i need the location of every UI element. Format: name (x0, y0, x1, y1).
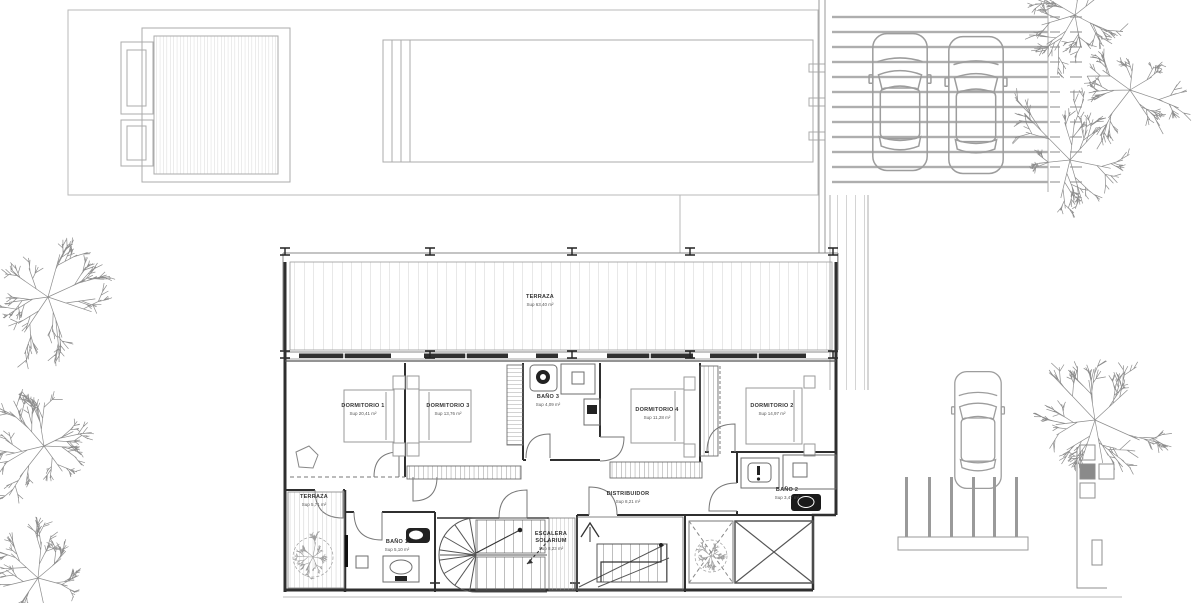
door-hall-1 (499, 490, 527, 518)
corner-chair (296, 446, 318, 468)
room-label-dormitorio-3: DORMITORIO 3 Sup 13,76 m² (426, 403, 469, 417)
room-label-dormitorio-1: DORMITORIO 1 Sup 20,41 m² (341, 403, 384, 417)
room-label-bano-3: BAÑO 3 Sup 4,09 m² (536, 394, 561, 408)
floor-plan-page: TERRAZA Sup 63,40 m² DORMITORIO 1 Sup 20… (0, 0, 1200, 603)
boundary-wall (819, 0, 825, 253)
pergola-carport (830, 8, 1082, 390)
room-label-escalera-solarium: ESCALERA SOLARIUM Sup 8,23 m² (531, 531, 571, 551)
facade-windows (299, 354, 806, 359)
wardrobe-d2 (700, 366, 718, 456)
room-label-dormitorio-2: DORMITORIO 2 Sup 14,97 m² (750, 403, 793, 417)
room-label-dormitorio-4: DORMITORIO 4 Sup 11,28 m² (635, 407, 678, 421)
terrace-hatch (290, 262, 832, 350)
shower-bano-2 (783, 455, 836, 489)
stair-shaft-hatch (549, 518, 575, 590)
main-stair (577, 517, 683, 590)
room-label-bano-2: BAÑO 2 Sup 3,47 m² (775, 487, 800, 501)
solarium-deck (121, 28, 290, 182)
floor-plan-drawing (0, 0, 1200, 603)
garden-structures (1077, 445, 1114, 588)
spiral-stair-solarium (439, 518, 575, 592)
shower-bano-3 (561, 364, 595, 394)
car-top-view-3 (952, 372, 1005, 489)
door-dormitorio-3 (413, 477, 437, 501)
room-label-bano-1: BAÑO 1 Sup 5,10 m² (385, 539, 410, 553)
pergola-slats (832, 12, 1048, 190)
door-bano-2 (709, 483, 737, 511)
room-label-distribuidor: DISTRIBUIDOR Sup 8,21 m² (607, 491, 650, 505)
wardrobe-d3 (407, 466, 521, 479)
swimming-pool (383, 40, 825, 162)
upper-terrace (283, 253, 838, 359)
door-dormitorio-4 (600, 437, 624, 461)
wardrobe-d4 (610, 462, 702, 478)
room-label-terraza-lower: TERRAZA Sup 5,71 m² (300, 494, 328, 508)
door-bano-3 (526, 434, 550, 458)
closet-d3 (507, 365, 523, 445)
stair-skylight (689, 521, 813, 583)
door-bano-1 (354, 512, 382, 540)
room-label-terraza-upper: TERRAZA Sup 63,40 m² (526, 294, 554, 308)
